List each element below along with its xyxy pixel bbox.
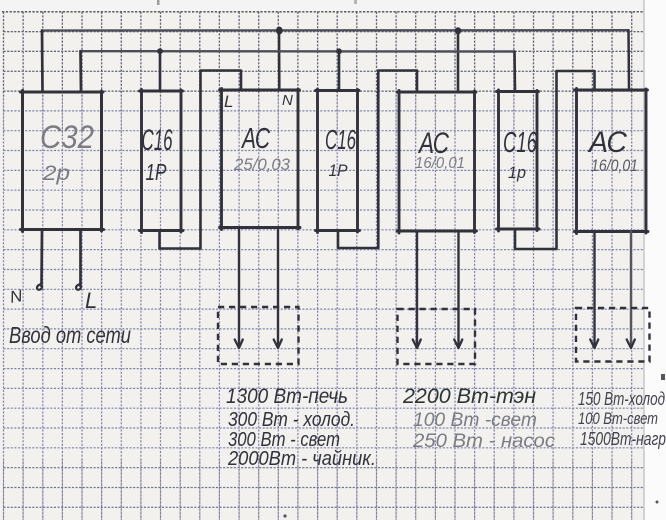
svg-text:1500Вт-нагр: 1500Вт-нагр [580,429,666,449]
svg-text:2200 Вт-тэн: 2200 Вт-тэн [402,385,536,408]
svg-text:1р: 1р [508,163,526,182]
svg-text:1Р: 1Р [146,159,167,185]
svg-text:С16: С16 [503,127,538,159]
svg-text:Ввод от сети: Ввод от сети [9,322,131,348]
svg-text:150 Вт-холод: 150 Вт-холод [578,389,665,409]
svg-text:16/0,01: 16/0,01 [415,155,465,172]
svg-text:L: L [224,92,233,111]
svg-text:300 Вт - холод.: 300 Вт - холод. [228,409,355,431]
svg-text:2000Вт - чайник.: 2000Вт - чайник. [227,448,376,470]
svg-text:1Р: 1Р [329,161,349,180]
svg-text:100 Вт-свет: 100 Вт-свет [578,409,658,428]
svg-text:N: N [282,92,293,109]
svg-text:100 Вт -свет: 100 Вт -свет [413,410,537,431]
svg-text:С16: С16 [142,124,173,157]
svg-text:1300 Вт-печь: 1300 Вт-печь [226,385,348,408]
svg-text:25/0,03: 25/0,03 [233,156,291,174]
svg-text:С32: С32 [40,119,94,155]
svg-text:С16: С16 [325,124,356,155]
svg-text:250 Вт - насос: 250 Вт - насос [412,431,556,452]
svg-text:АС: АС [241,123,271,155]
svg-text:16/0,01: 16/0,01 [591,156,638,175]
svg-text:L: L [85,288,97,313]
svg-text:АС: АС [587,126,627,159]
svg-text:2р: 2р [42,162,70,185]
